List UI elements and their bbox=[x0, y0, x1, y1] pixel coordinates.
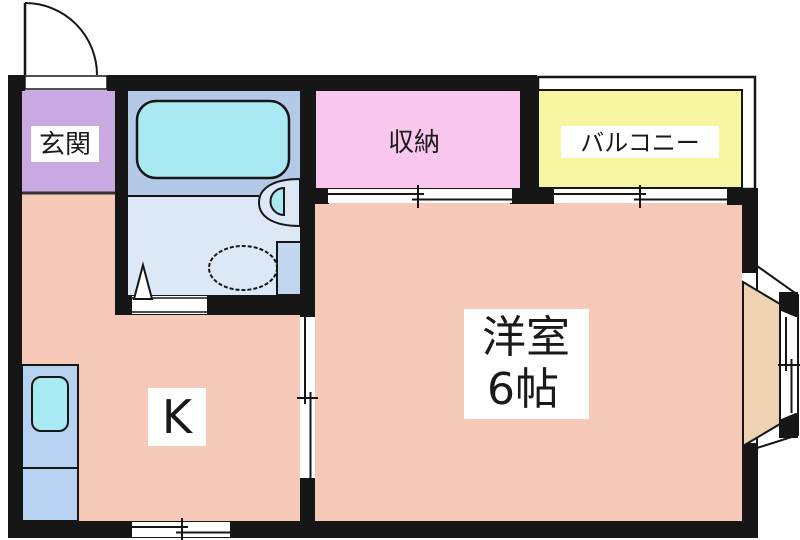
wall-right-lower bbox=[742, 443, 758, 538]
western-room-size-label: 6帖 bbox=[487, 364, 559, 415]
wall-bathroom-left bbox=[115, 90, 128, 315]
bay-window bbox=[743, 266, 800, 448]
wall-bathroom-right bbox=[300, 75, 315, 317]
wall-right-upper bbox=[742, 188, 758, 273]
toilet-tank-icon bbox=[277, 242, 301, 295]
storage-label: 収納 bbox=[388, 128, 440, 158]
toilet-bowl-icon bbox=[209, 246, 277, 290]
storage-slider-gap bbox=[328, 189, 512, 203]
floor-plan: 玄関 収納 バルコニー K 洋室 6帖 bbox=[0, 0, 800, 540]
wall-left bbox=[8, 75, 22, 538]
balcony-label: バルコニー bbox=[580, 129, 700, 157]
wall-kitchen-room-lower bbox=[300, 478, 315, 526]
kitchen-label: K bbox=[162, 390, 194, 444]
floor-plan-canvas: 玄関 収納 バルコニー K 洋室 6帖 bbox=[0, 0, 800, 540]
bay-window-floor bbox=[743, 282, 780, 446]
kitchen-room-sliding-door bbox=[297, 317, 318, 478]
western-room-label: 洋室 bbox=[482, 312, 570, 363]
wall-top-main bbox=[107, 75, 537, 91]
wall-seg-between-sliders bbox=[510, 188, 554, 204]
entrance-threshold bbox=[25, 76, 107, 89]
wall-seg-storage-left bbox=[315, 188, 329, 204]
kitchen-sink-icon bbox=[32, 377, 68, 431]
bathtub-icon bbox=[137, 101, 289, 178]
wall-storage-balcony bbox=[521, 75, 537, 191]
genkan-label: 玄関 bbox=[39, 130, 91, 160]
wall-bottom bbox=[8, 521, 758, 538]
entrance-door-swing-arc bbox=[25, 3, 97, 75]
